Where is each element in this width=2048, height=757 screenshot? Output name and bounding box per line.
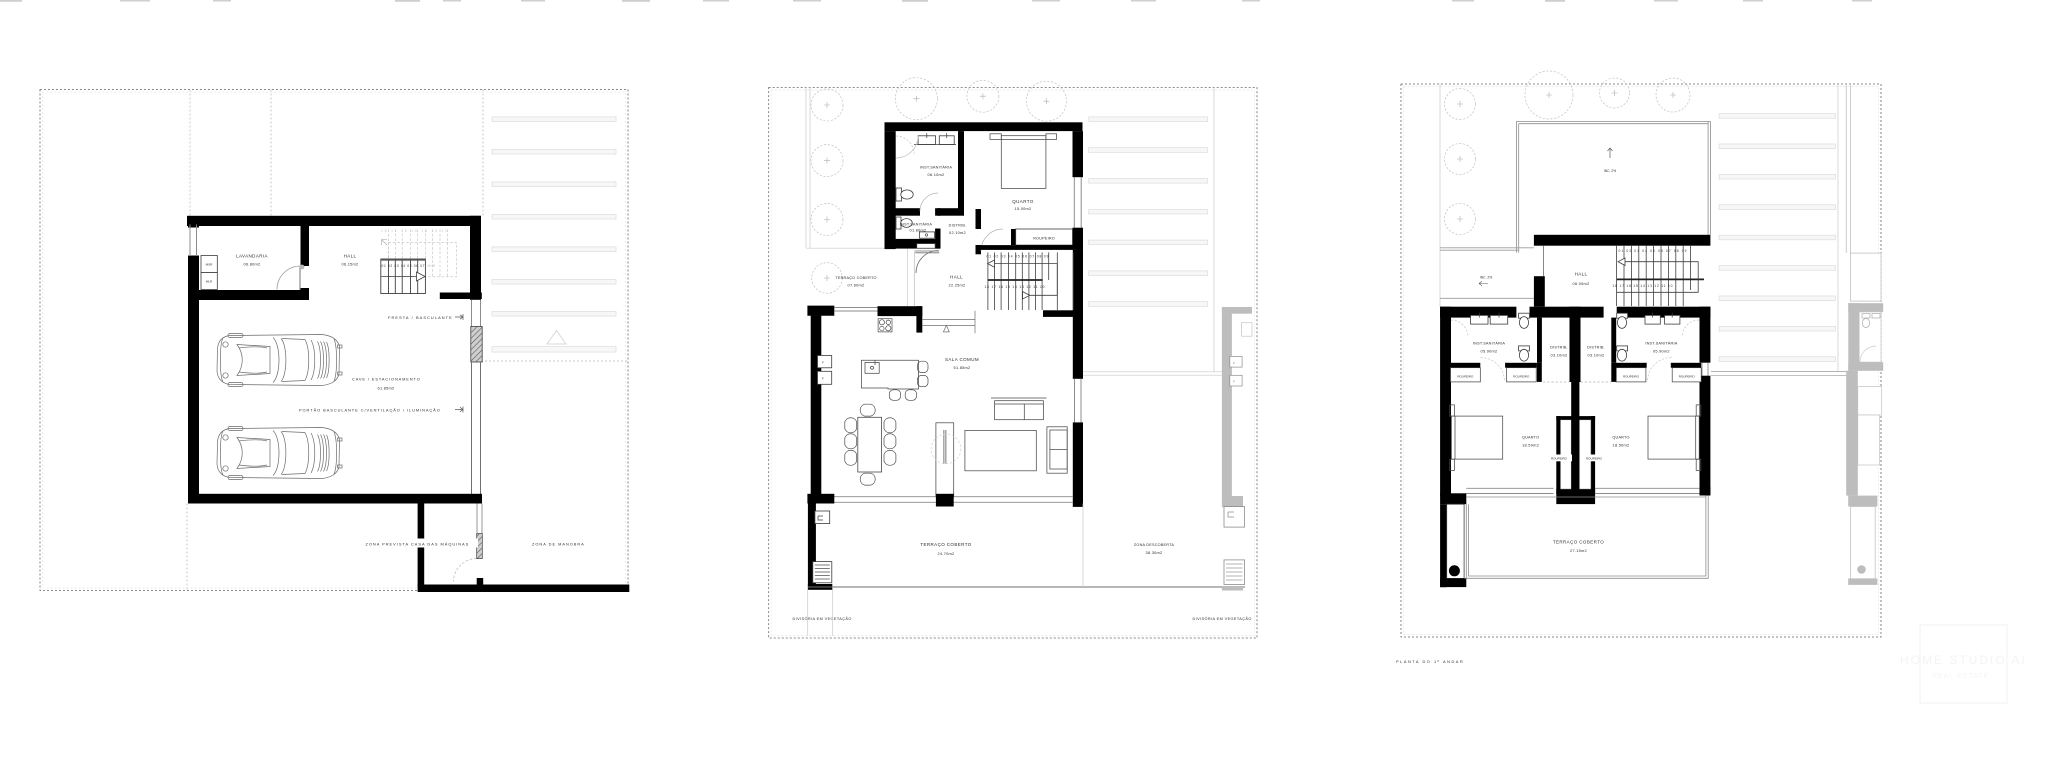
svg-text:ZONA PREVISTA CASA DAS MÁQ: ZONA PREVISTA CASA DAS MÁQUINAS bbox=[366, 542, 469, 547]
svg-text:REAL ESTATE: REAL ESTATE bbox=[1932, 673, 1989, 680]
svg-text:06.10m2: 06.10m2 bbox=[928, 172, 945, 177]
svg-text:18 17 16 15 14 13 12 11 10: 18 17 16 15 14 13 12 11 10 bbox=[1613, 284, 1673, 288]
svg-text:DIVISÓRIA EM VEGETAÇÃO: DIVISÓRIA EM VEGETAÇÃO bbox=[793, 616, 852, 621]
svg-text:18.50m2: 18.50m2 bbox=[1613, 443, 1630, 448]
svg-text:ROUPEIRO: ROUPEIRO bbox=[1551, 457, 1568, 461]
svg-text:QUARTO: QUARTO bbox=[1522, 436, 1539, 440]
svg-text:MLR: MLR bbox=[206, 280, 213, 284]
svg-text:F: F bbox=[822, 361, 824, 365]
svg-text:01 02 03 04 05 06 07 08 09: 01 02 03 04 05 06 07 08 09 bbox=[1619, 249, 1687, 253]
svg-text:F: F bbox=[822, 377, 824, 381]
svg-text:HALL: HALL bbox=[950, 275, 963, 280]
svg-text:DISTRIB.: DISTRIB. bbox=[949, 224, 967, 228]
svg-text:F: F bbox=[1233, 361, 1235, 365]
svg-text:15.00m2: 15.00m2 bbox=[1015, 206, 1032, 211]
svg-text:FRESTA / BASCULANTE: FRESTA / BASCULANTE bbox=[388, 315, 452, 320]
svg-text:01 02 03 04 05 06 07: 01 02 03 04 05 06 07 bbox=[382, 264, 425, 268]
svg-text:22.25m2: 22.25m2 bbox=[949, 283, 966, 288]
svg-text:TERRAÇO COBERTO: TERRAÇO COBERTO bbox=[1553, 540, 1604, 545]
svg-text:03.10m2: 03.10m2 bbox=[1588, 353, 1605, 358]
svg-text:HALL: HALL bbox=[1575, 272, 1588, 277]
svg-text:PLANTA DO 1º ANDAR: PLANTA DO 1º ANDAR bbox=[1396, 659, 1463, 664]
svg-text:INST.SANITÁRIA: INST.SANITÁRIA bbox=[900, 223, 932, 227]
svg-text:TERRAÇO COBERTO: TERRAÇO COBERTO bbox=[835, 276, 876, 280]
svg-text:INST.SANITÁRIA: INST.SANITÁRIA bbox=[1473, 342, 1505, 346]
svg-text:ROUPEIRO: ROUPEIRO bbox=[1679, 374, 1696, 378]
svg-text:ROUPEIRO: ROUPEIRO bbox=[1033, 237, 1055, 241]
svg-text:18.50m2: 18.50m2 bbox=[1522, 443, 1539, 448]
svg-text:05.90m2: 05.90m2 bbox=[1481, 349, 1498, 354]
svg-text:05.90m2: 05.90m2 bbox=[1653, 349, 1670, 354]
svg-text:INC. 2%: INC. 2% bbox=[1480, 276, 1492, 280]
svg-text:61.85m2: 61.85m2 bbox=[378, 386, 395, 391]
svg-text:LAVANDARIA: LAVANDARIA bbox=[236, 254, 268, 259]
svg-text:INST.SANITÁRIA: INST.SANITÁRIA bbox=[920, 166, 952, 170]
svg-text:ROUPEIRO: ROUPEIRO bbox=[1513, 374, 1530, 378]
svg-text:PORTÃO BASCULANTE C/VENTILAÇ: PORTÃO BASCULANTE C/VENTILAÇÃO / ILUMINA… bbox=[299, 408, 440, 413]
svg-text:08 09: 08 09 bbox=[427, 264, 435, 268]
svg-text:HOME STUDIO AI: HOME STUDIO AI bbox=[1900, 653, 2027, 667]
svg-text:02.10m2: 02.10m2 bbox=[949, 230, 966, 235]
svg-text:ROUPEIRO: ROUPEIRO bbox=[1623, 374, 1640, 378]
svg-text:06.15m2: 06.15m2 bbox=[342, 262, 359, 267]
svg-text:06.05m2: 06.05m2 bbox=[1573, 281, 1590, 286]
svg-text:TERRAÇO COBERTO: TERRAÇO COBERTO bbox=[920, 542, 971, 547]
svg-text:ROUPEIRO: ROUPEIRO bbox=[1586, 457, 1603, 461]
svg-text:03.10m2: 03.10m2 bbox=[1551, 353, 1568, 358]
svg-text:INST.SANITÁRIA: INST.SANITÁRIA bbox=[1645, 342, 1677, 346]
svg-text:QUARTO: QUARTO bbox=[1612, 436, 1629, 440]
svg-text:DIVISÓRIA EM VEGETAÇÃO: DIVISÓRIA EM VEGETAÇÃO bbox=[1193, 616, 1252, 621]
svg-text:DISTRIB.: DISTRIB. bbox=[1550, 346, 1568, 350]
svg-text:06.80m2: 06.80m2 bbox=[244, 262, 261, 267]
svg-text:QUARTO: QUARTO bbox=[1012, 199, 1034, 204]
svg-text:MSR: MSR bbox=[206, 263, 214, 267]
svg-text:27.15m2: 27.15m2 bbox=[1570, 548, 1587, 553]
svg-text:07.60m2: 07.60m2 bbox=[848, 283, 865, 288]
svg-text:HALL: HALL bbox=[344, 254, 357, 259]
svg-text:38.30m2: 38.30m2 bbox=[1146, 550, 1163, 555]
svg-text:24.70m2: 24.70m2 bbox=[938, 551, 955, 556]
svg-text:ZONA DESCOBERTA: ZONA DESCOBERTA bbox=[1134, 543, 1174, 547]
svg-text:18 17 16 15 14 13 12 11 10: 18 17 16 15 14 13 12 11 10 bbox=[985, 285, 1045, 289]
svg-text:ROUPEIRO: ROUPEIRO bbox=[1457, 374, 1474, 378]
svg-text:DISTRIB.: DISTRIB. bbox=[1587, 346, 1605, 350]
svg-text:51.85m2: 51.85m2 bbox=[954, 365, 971, 370]
svg-text:01 02 03 04 05 06 07 08 09: 01 02 03 04 05 06 07 08 09 bbox=[987, 254, 1049, 258]
svg-text:SALA COMUM: SALA COMUM bbox=[945, 357, 979, 362]
svg-text:ZONA DE MANOBRA: ZONA DE MANOBRA bbox=[532, 542, 584, 547]
svg-text:F: F bbox=[1233, 380, 1235, 384]
svg-text:INC. 2%: INC. 2% bbox=[1604, 169, 1616, 173]
svg-text:CAVE / ESTACIONAMENTO: CAVE / ESTACIONAMENTO bbox=[352, 377, 420, 382]
